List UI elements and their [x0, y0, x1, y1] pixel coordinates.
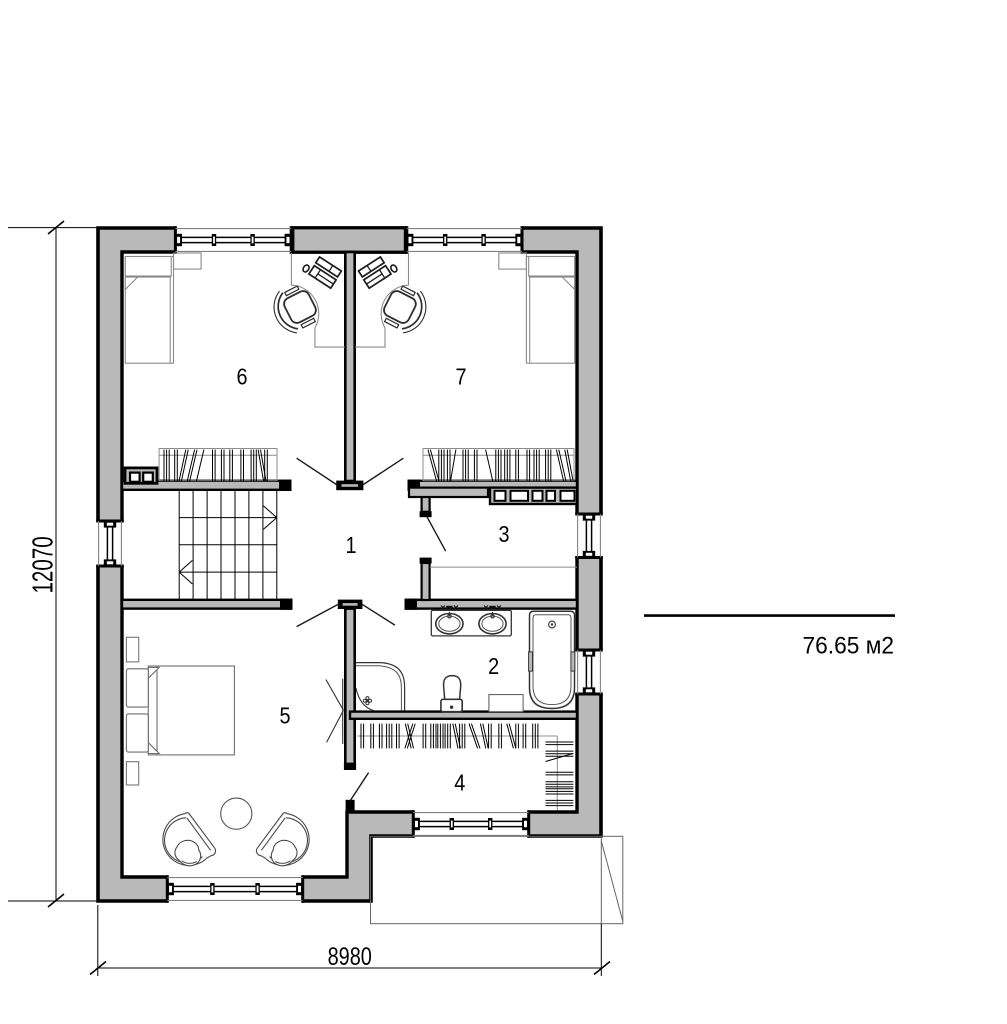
- svg-text:3: 3: [498, 520, 509, 547]
- svg-text:76.65 м2: 76.65 м2: [803, 632, 894, 659]
- svg-text:2: 2: [488, 652, 499, 679]
- svg-text:1: 1: [345, 531, 356, 558]
- svg-text:8980: 8980: [328, 943, 372, 971]
- svg-text:4: 4: [454, 769, 465, 796]
- svg-text:7: 7: [455, 363, 466, 390]
- svg-text:6: 6: [236, 363, 247, 390]
- svg-text:12070: 12070: [27, 536, 59, 593]
- svg-text:5: 5: [279, 702, 290, 729]
